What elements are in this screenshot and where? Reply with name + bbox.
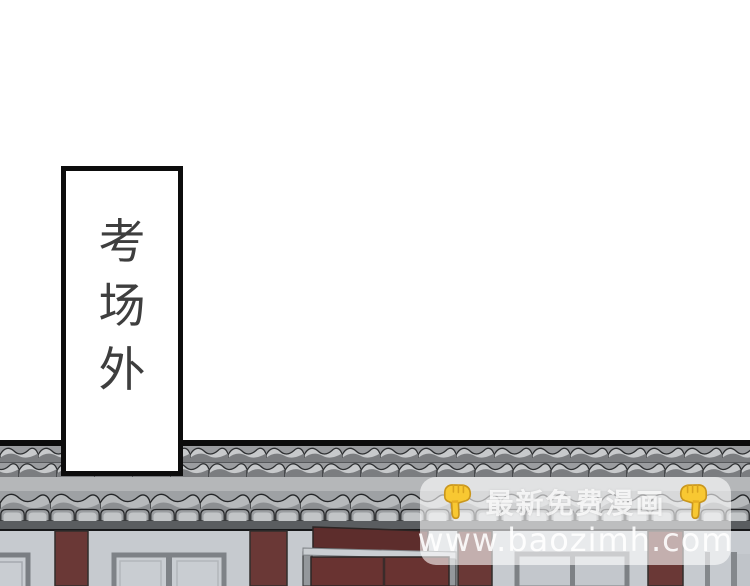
sign-char-3: 外 xyxy=(99,347,146,394)
location-sign: 考 场 外 xyxy=(61,166,183,476)
pillar xyxy=(250,531,287,586)
pillar xyxy=(55,531,88,586)
watermark-promo-row: 最新免费漫画 xyxy=(441,484,709,520)
sign-char-2: 场 xyxy=(99,283,146,330)
watermark-banner: 最新免费漫画 www.baozimh.com xyxy=(420,477,731,565)
pointing-down-finger-icon xyxy=(441,482,474,522)
watermark-url: www.baozimh.com xyxy=(418,521,734,559)
window-left xyxy=(0,555,28,586)
sign-char-1: 考 xyxy=(99,219,146,266)
pointing-down-finger-icon xyxy=(677,482,710,522)
watermark-promo-text: 最新免费漫画 xyxy=(485,482,665,522)
comic-panel: 考 场 外 最新免费漫画 xyxy=(0,0,750,586)
window-double xyxy=(114,553,224,586)
